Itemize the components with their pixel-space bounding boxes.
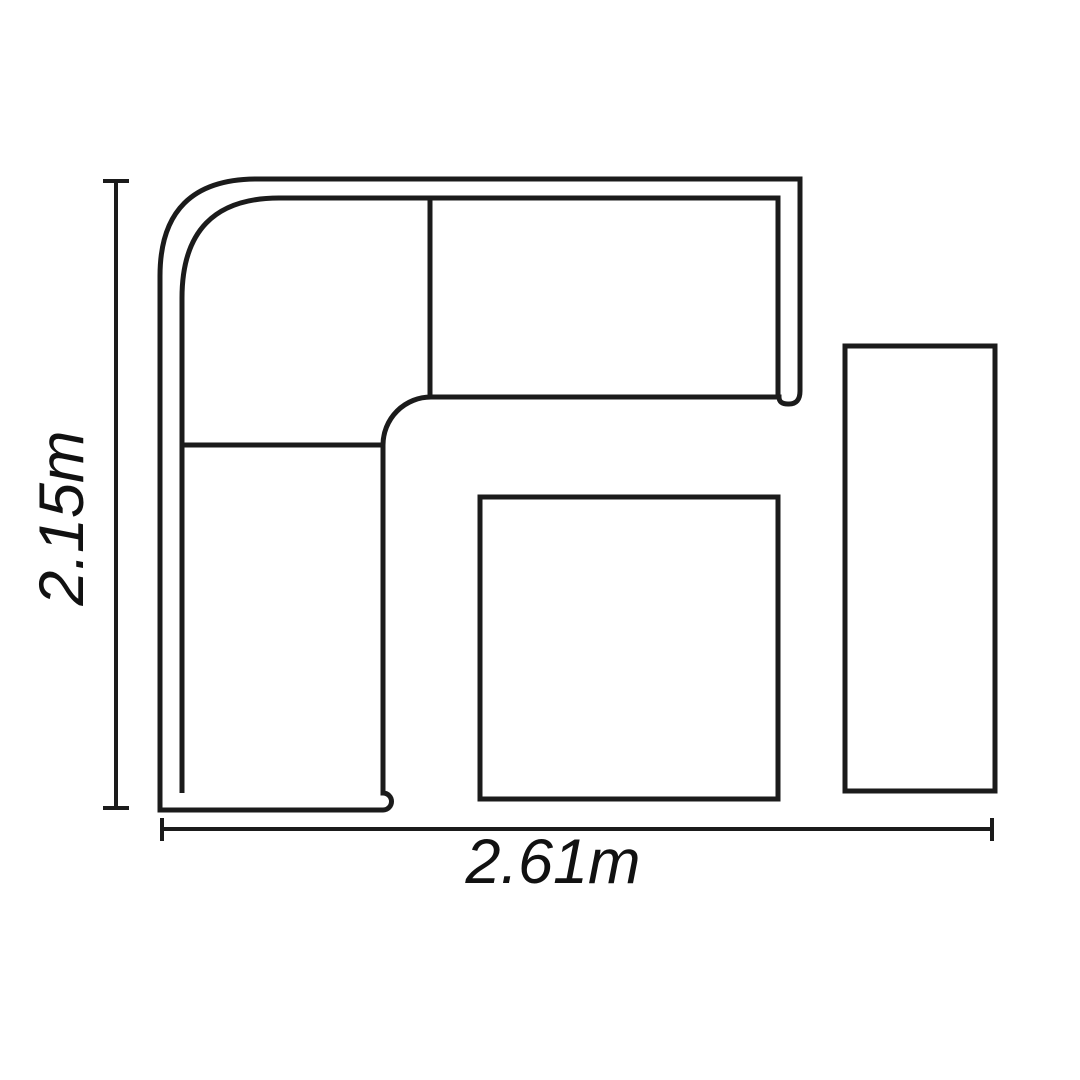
side-bench-outline (845, 346, 995, 791)
height-dimension-line (103, 181, 129, 808)
square-table-outline (480, 497, 778, 799)
height-dimension-label: 2.15m (26, 408, 98, 628)
floor-plan-svg (0, 0, 1080, 1080)
width-dimension-label: 2.61m (443, 826, 663, 898)
furniture-dimension-diagram: 2.15m 2.61m (0, 0, 1080, 1080)
